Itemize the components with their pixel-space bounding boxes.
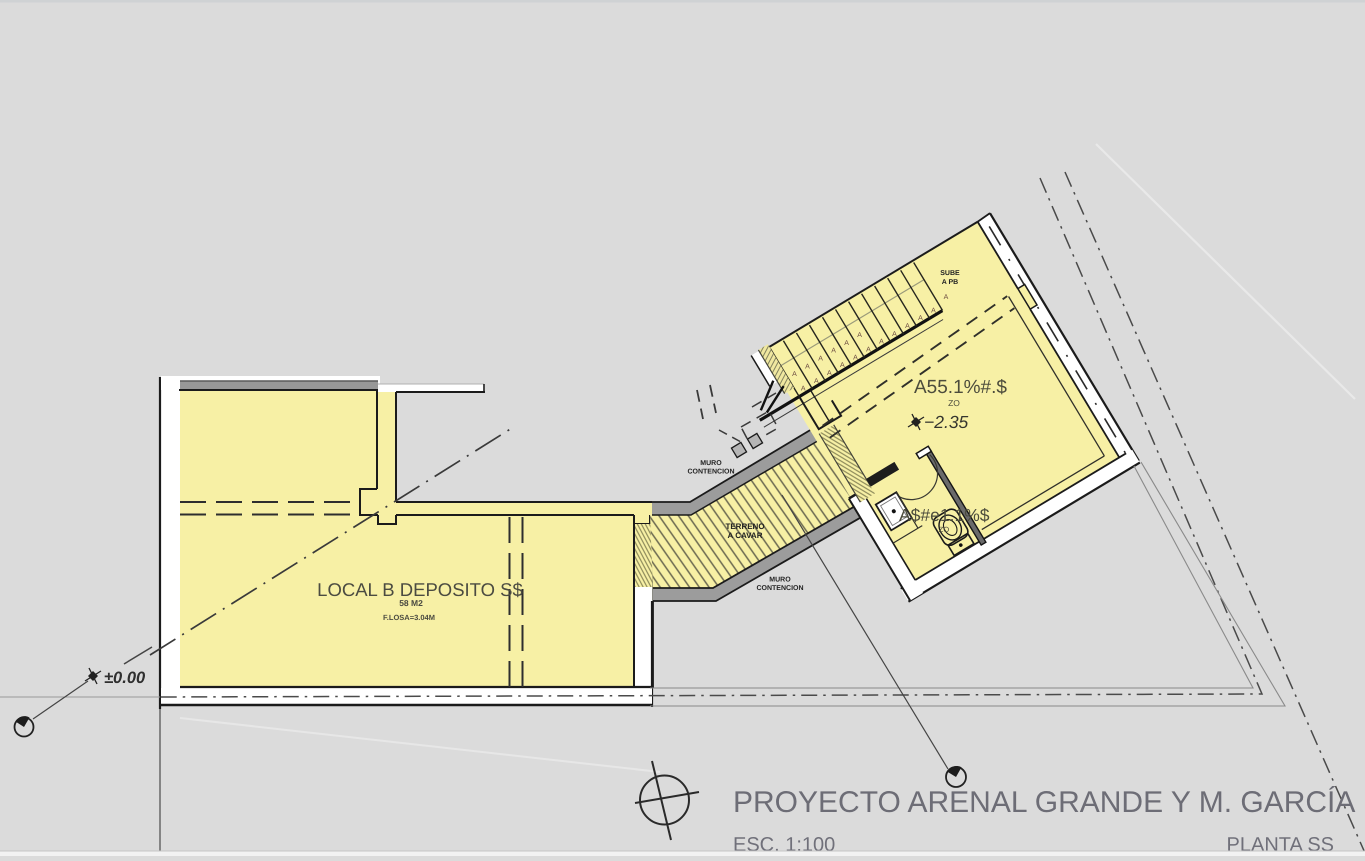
svg-text:A: A <box>892 331 897 338</box>
svg-text:ZO: ZO <box>948 398 960 408</box>
svg-text:A: A <box>866 347 871 354</box>
svg-text:A: A <box>840 362 845 369</box>
svg-text:MURO: MURO <box>769 577 791 584</box>
svg-text:ZO: ZO <box>939 525 950 534</box>
svg-text:F.LOSA=3.04M: F.LOSA=3.04M <box>383 613 435 622</box>
svg-text:LOCAL B DEPOSITO S$: LOCAL B DEPOSITO S$ <box>317 579 523 600</box>
svg-text:A$#e1.1%$: A$#e1.1%$ <box>899 505 990 525</box>
svg-text:A: A <box>905 323 910 330</box>
svg-text:CONTENCION: CONTENCION <box>687 469 734 476</box>
svg-text:A: A <box>805 363 810 370</box>
svg-text:A: A <box>853 354 858 361</box>
svg-text:A: A <box>801 386 806 393</box>
svg-text:A: A <box>792 371 797 378</box>
svg-text:A: A <box>931 307 936 314</box>
svg-text:CONTENCION: CONTENCION <box>756 585 803 592</box>
svg-text:A55.1%#.$: A55.1%#.$ <box>914 377 1007 398</box>
svg-text:A: A <box>918 315 923 322</box>
svg-text:A: A <box>831 348 836 355</box>
svg-text:A: A <box>857 332 862 339</box>
svg-text:A: A <box>844 340 849 347</box>
svg-text:A: A <box>814 378 819 385</box>
svg-text:A PB: A PB <box>942 279 958 286</box>
svg-text:PROYECTO ARENAL GRANDE Y M. GA: PROYECTO ARENAL GRANDE Y M. GARCÍA <box>733 785 1355 819</box>
svg-text:A CAVAR: A CAVAR <box>728 531 763 540</box>
svg-text:−2.35: −2.35 <box>924 412 969 432</box>
svg-text:MURO: MURO <box>700 460 722 467</box>
svg-text:A: A <box>818 355 823 362</box>
svg-text:58 M2: 58 M2 <box>399 598 423 608</box>
svg-text:SUBE: SUBE <box>940 270 960 277</box>
svg-text:A: A <box>827 370 832 377</box>
svg-text:TERRENO: TERRENO <box>725 522 764 531</box>
svg-text:±0.00: ±0.00 <box>104 669 146 687</box>
svg-text:A: A <box>944 294 949 301</box>
svg-text:A: A <box>879 339 884 346</box>
